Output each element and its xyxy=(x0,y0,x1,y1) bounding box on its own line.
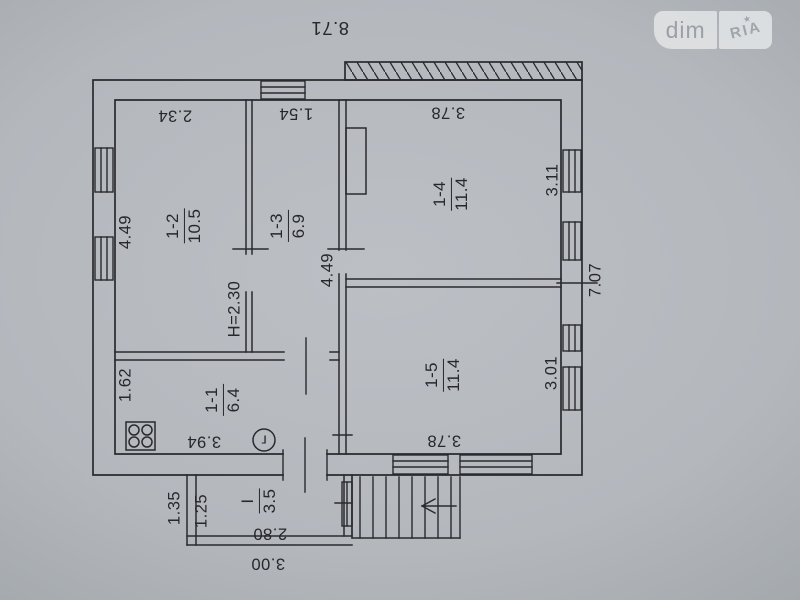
room-label-1-4: 1-4 11.4 xyxy=(430,177,472,210)
dim-kitchen-depth: 1.62 xyxy=(117,368,136,402)
stove-icon xyxy=(126,422,155,450)
window-left-2 xyxy=(95,237,113,280)
room-area: 11.4 xyxy=(444,358,464,391)
room-area: 11.4 xyxy=(452,177,472,210)
watermark-dim-text: dim xyxy=(654,11,717,49)
dim-room-1-4-height: 3.11 xyxy=(544,164,563,197)
ceiling-height-note: H=2.30 xyxy=(226,281,245,338)
dim-total-height: 7.07 xyxy=(587,263,606,297)
window-right-1 xyxy=(563,150,581,192)
dim-total-width: 8.71 xyxy=(311,17,349,39)
room-number: 1-4 xyxy=(430,177,452,210)
room-label-porch: I 3.5 xyxy=(238,489,280,514)
dim-room-1-5-height: 3.01 xyxy=(543,356,562,390)
furnace-icon xyxy=(346,128,366,194)
room-number: 1-3 xyxy=(267,210,289,242)
interior-walls xyxy=(115,100,561,454)
window-right-2 xyxy=(563,222,581,260)
room-label-1-2: 1-2 10.5 xyxy=(163,209,205,244)
hatched-adjacent-wall xyxy=(345,62,582,80)
dim-porch-width-inner: 2.80 xyxy=(253,524,287,543)
dim-room-1-3-width: 1.54 xyxy=(279,104,313,123)
room-number: I xyxy=(238,489,260,514)
room-area: 6.4 xyxy=(224,384,244,416)
watermark-ria-text: RIA xyxy=(728,18,763,42)
window-right-3 xyxy=(563,325,581,351)
dim-room-1-5-width: 3.78 xyxy=(427,431,461,450)
floor-plan-photo: 8.71 2.34 1.54 3.78 3.11 7.07 3.01 4.49 … xyxy=(0,0,800,600)
dim-porch-depth-inner: 1.25 xyxy=(193,494,212,528)
dim-room-1-4-width: 3.78 xyxy=(431,103,465,122)
dim-room-1-2-height: 4.49 xyxy=(117,215,136,249)
dim-kitchen-width: 3.94 xyxy=(187,432,221,451)
window-bottom-1 xyxy=(393,455,448,474)
dim-room-1-2-width: 2.34 xyxy=(158,106,192,125)
window-top xyxy=(261,81,305,99)
dim-porch-depth-outer: 1.35 xyxy=(166,491,185,525)
gas-meter-letter: г xyxy=(261,432,266,449)
room-area: 3.5 xyxy=(260,489,280,514)
watermark-ria-logo: ★ RIA xyxy=(719,11,772,49)
room-area: 6.9 xyxy=(289,210,309,242)
room-label-1-3: 1-3 6.9 xyxy=(267,210,309,242)
floor-plan-drawing xyxy=(0,0,800,600)
room-number: 1-5 xyxy=(422,358,444,391)
window-left-1 xyxy=(95,148,113,192)
room-number: 1-1 xyxy=(202,384,224,416)
dim-ria-watermark: dim ★ RIA xyxy=(654,11,772,49)
window-right-4 xyxy=(563,367,581,410)
window-symbols xyxy=(95,81,581,526)
dim-hall-height: 4.49 xyxy=(319,253,338,287)
room-number: 1-2 xyxy=(163,209,185,244)
window-bottom-2 xyxy=(460,455,532,474)
room-label-1-1: 1-1 6.4 xyxy=(202,384,244,416)
exterior-walls xyxy=(93,80,582,475)
dim-porch-width-outer: 3.00 xyxy=(251,554,285,573)
room-label-1-5: 1-5 11.4 xyxy=(422,358,464,391)
room-area: 10.5 xyxy=(185,209,205,244)
stairs xyxy=(352,477,460,538)
